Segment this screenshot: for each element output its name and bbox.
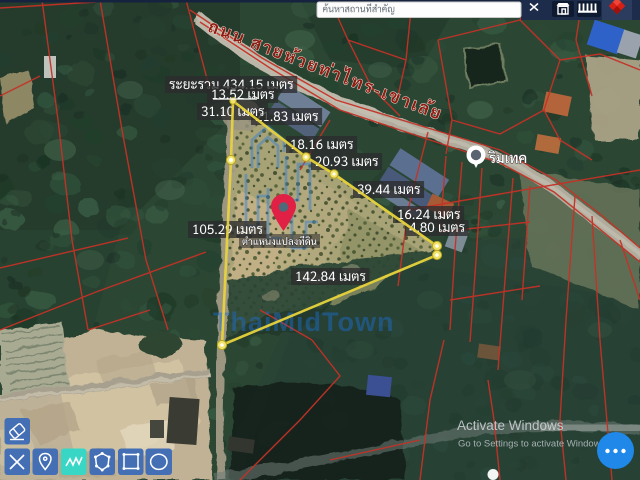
svg-text:Activate Windows: Activate Windows bbox=[457, 418, 564, 433]
svg-text:Go to Settings to activate Win: Go to Settings to activate Windows bbox=[458, 439, 606, 450]
